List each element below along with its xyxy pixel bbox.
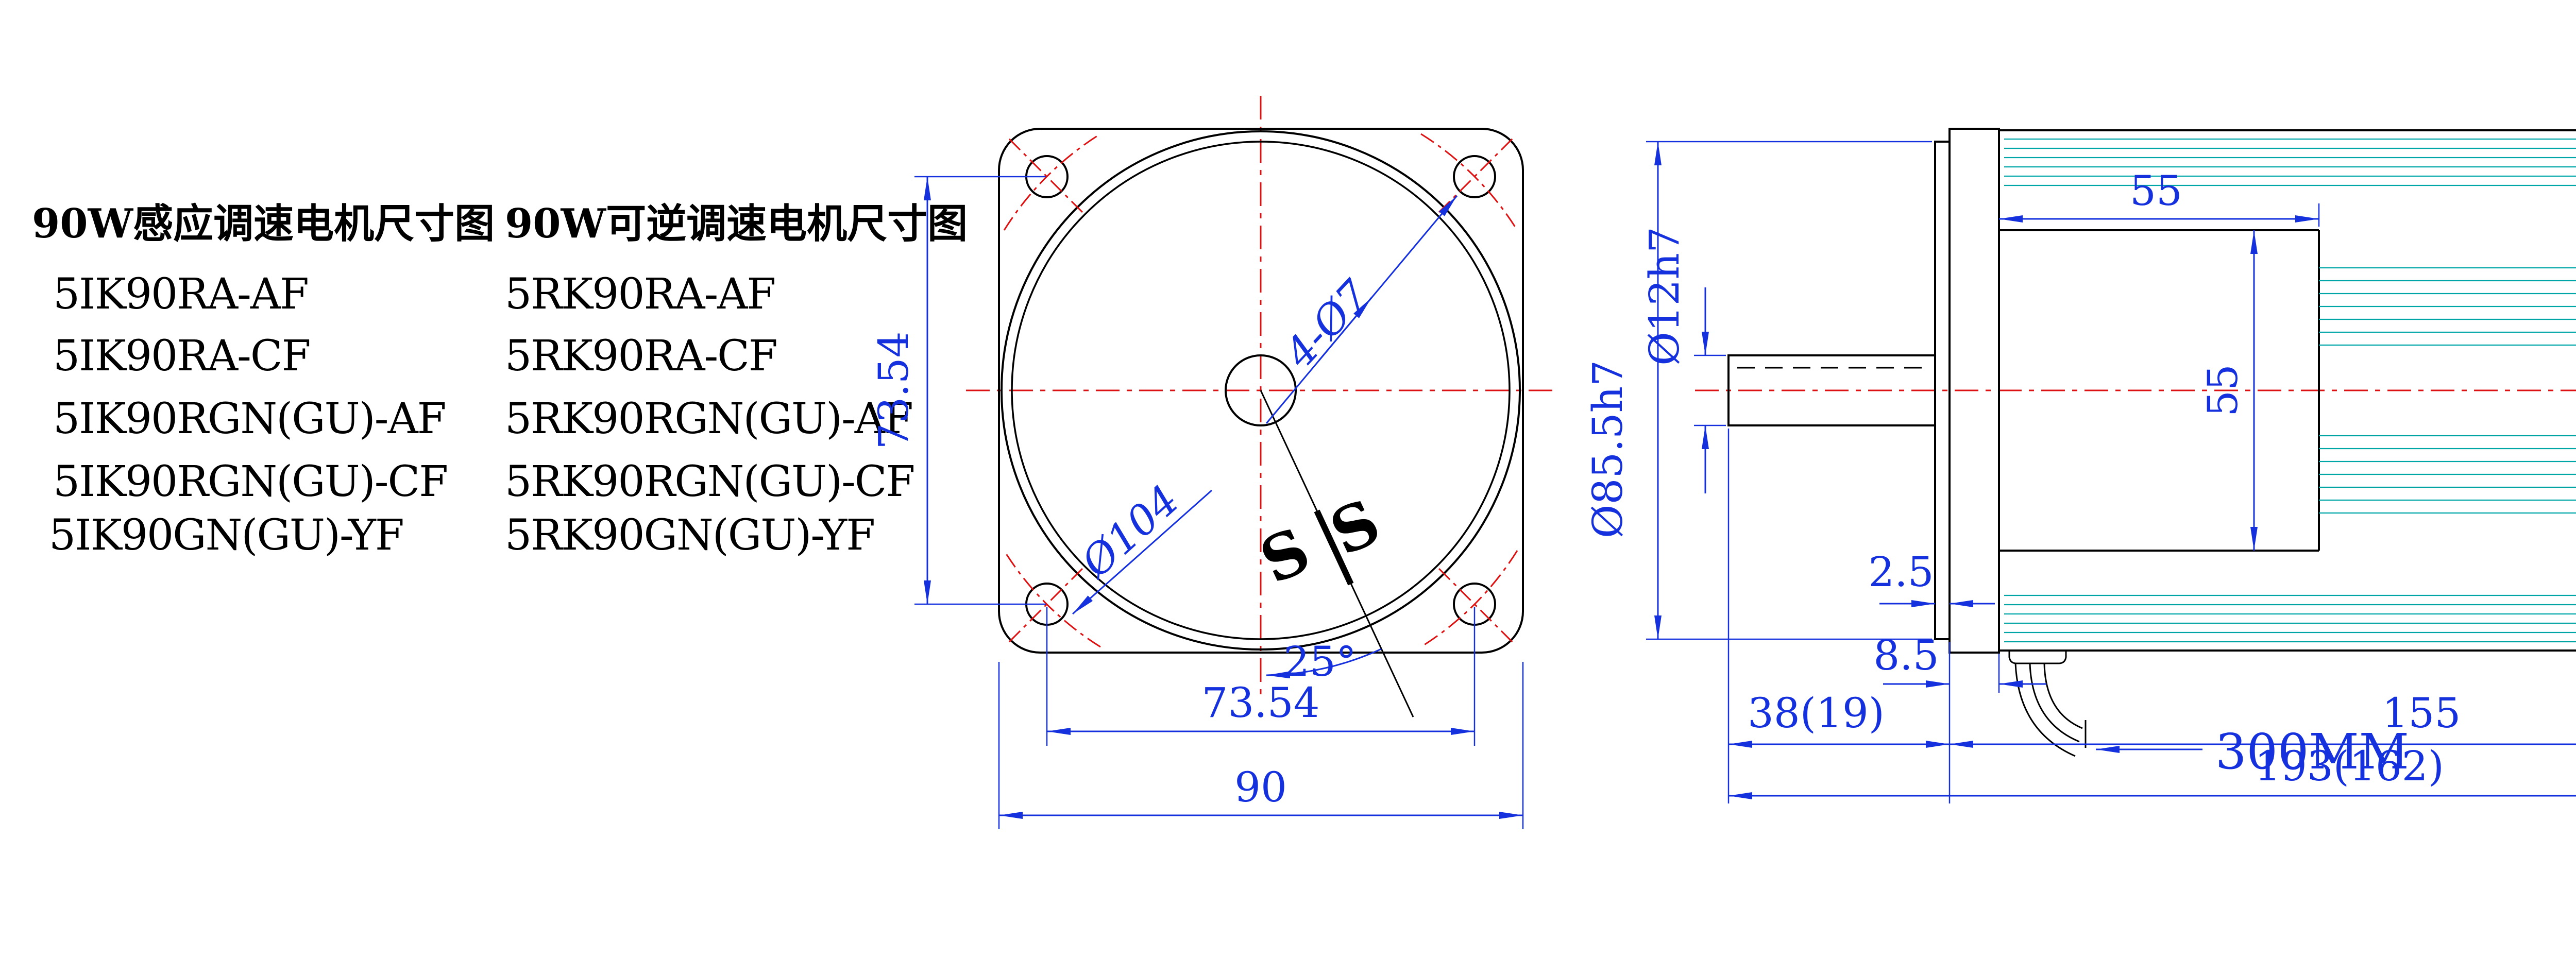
dim-text-flange-thickness: 8.5 <box>1873 631 1939 679</box>
side-view: Ø85.5h7 Ø12h7 55 55 2.5 8.5 38(19) 155 1… <box>1584 129 2576 803</box>
label-hole-count-diameter: 4-Ø7 <box>1275 271 1379 377</box>
brand-logo-right: S <box>1319 485 1391 570</box>
dim-text-pilot-diameter: Ø85.5h7 <box>1584 360 1632 538</box>
front-view: S S 73.54 73.54 90 25 <box>870 96 1557 829</box>
dim-text-vertical-hole-pitch: 73.54 <box>870 331 918 449</box>
dim-text-overall-width: 90 <box>1234 763 1287 811</box>
drawing-canvas: 90W感应调速电机尺寸图 90W可逆调速电机尺寸图 5IK90RA-AF 5IK… <box>0 0 2576 958</box>
lead-wire <box>2030 663 2079 742</box>
lead-wire-exit <box>2009 651 2086 756</box>
dim-text-shaft-diameter: Ø12h7 <box>1640 227 1688 366</box>
dim-text-pilot-protrusion: 2.5 <box>1868 548 1934 596</box>
dim-text-angle: 25° <box>1283 638 1357 686</box>
technical-drawing-svg: S S 73.54 73.54 90 25 <box>0 0 2576 958</box>
lead-wire <box>2044 663 2082 728</box>
dim-text-front-section-length: 55 <box>2130 167 2182 215</box>
dim-text-shaft-length: 38(19) <box>1748 689 1885 737</box>
dim-text-core-height: 55 <box>2199 364 2247 417</box>
dim-text-horizontal-hole-pitch: 73.54 <box>1201 679 1319 727</box>
label-lead-wire-length: 300MM <box>2215 724 2409 780</box>
